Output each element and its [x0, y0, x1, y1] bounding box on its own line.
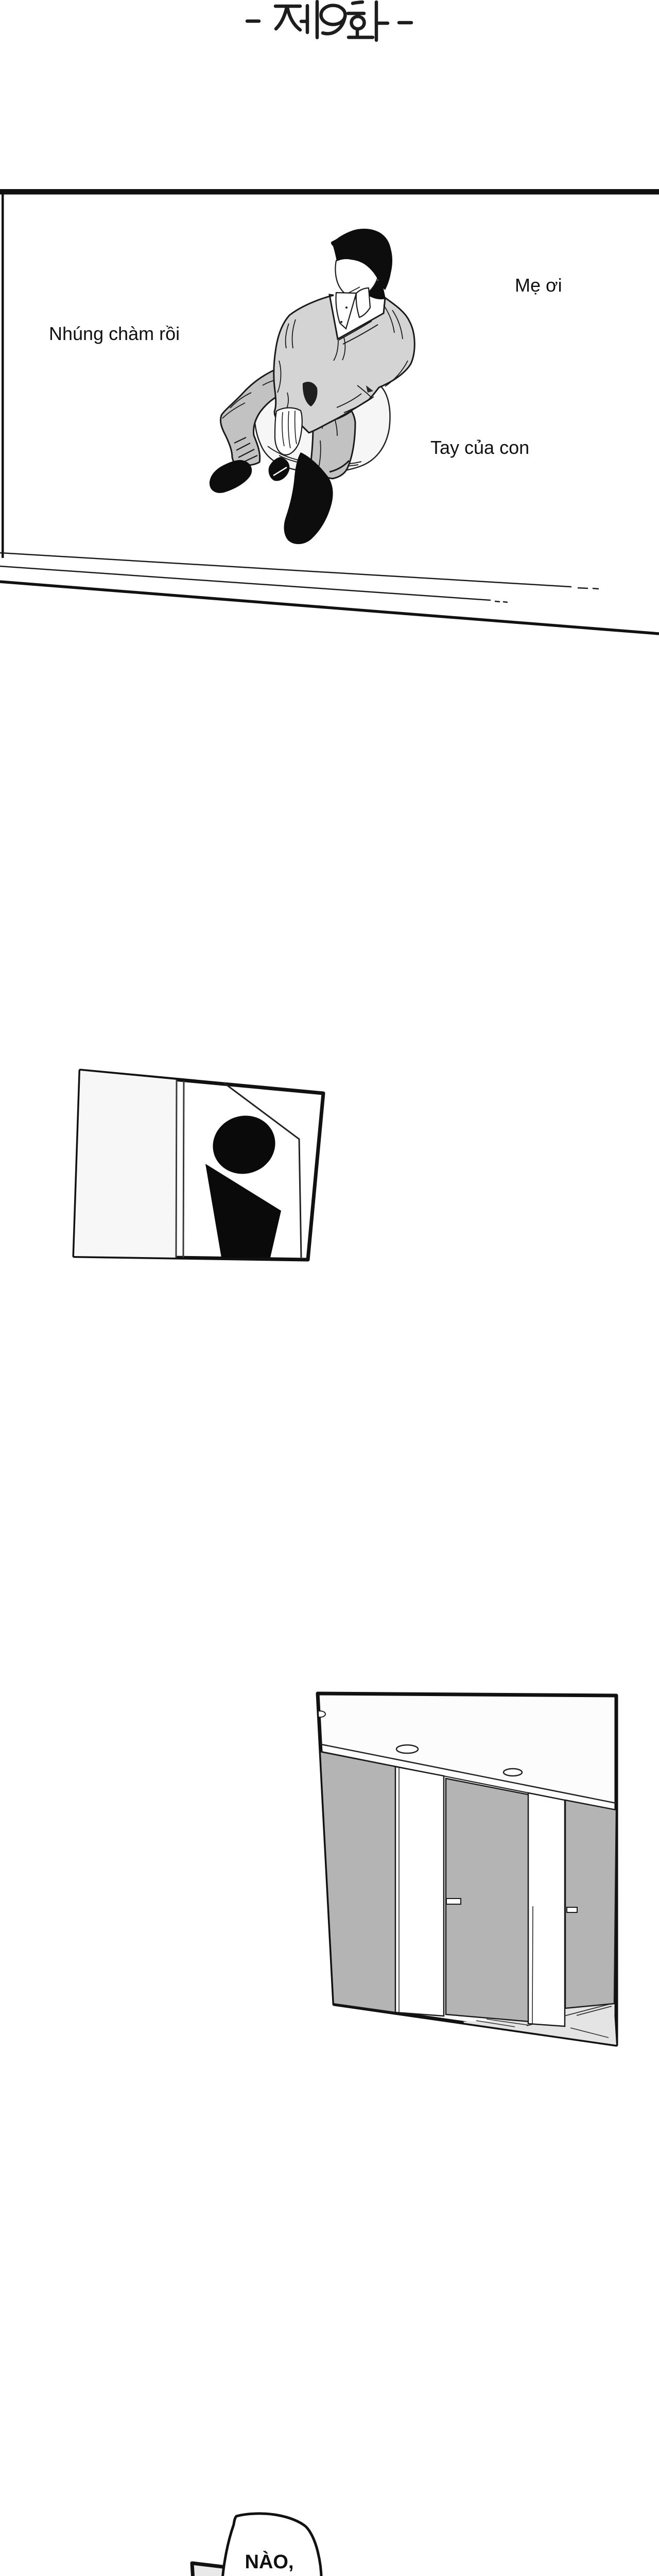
svg-text:NÀO,: NÀO, [245, 2550, 294, 2573]
svg-text:Nhúng chàm rồi: Nhúng chàm rồi [49, 323, 180, 344]
svg-text:Mẹ ơi: Mẹ ơi [515, 275, 562, 296]
svg-text:Tay của con: Tay của con [430, 437, 529, 458]
